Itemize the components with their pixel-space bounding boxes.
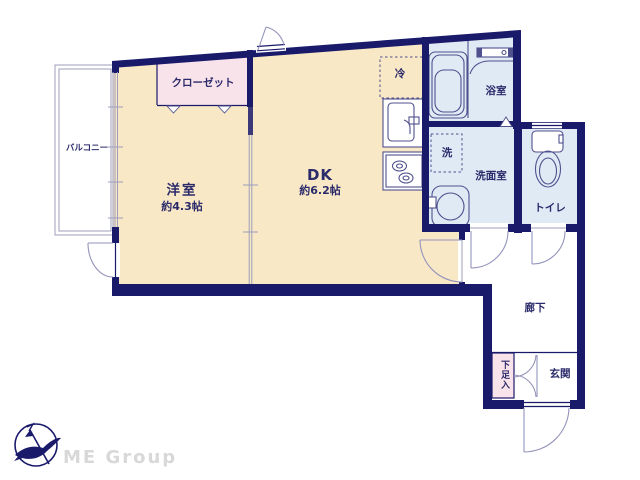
closet-label: クローゼット [172,78,235,90]
toilet-label: トイレ [534,203,566,215]
bedroom-label: 洋室 [167,184,198,199]
bathroom-label: 浴室 [486,86,507,98]
washroom-door [471,231,508,268]
bedroom-area: 約4.3帖 [161,201,203,213]
entrance-label: 玄関 [550,369,571,381]
kitchen-sink [383,99,425,147]
stove [383,152,425,190]
hallway-label: 廊下 [525,303,546,315]
fridge-label: 冷 [395,69,406,81]
floorplan-drawing [0,0,640,480]
balcony-label: バルコニー [66,144,108,153]
brand-logo-mark [14,424,61,466]
shoebox-label: 下足入 [498,360,508,390]
toilet-door [532,231,565,264]
bath-washroom-floor [424,32,521,232]
washroom-label: 洗面室 [475,171,507,183]
shoebox-doors [514,355,537,397]
entry-door [524,408,569,452]
dk-area: 約6.2帖 [299,185,341,197]
laundry-label: 洗 [442,148,453,160]
brand-logo-text: ME Group [63,447,177,468]
floorplan-canvas: バルコニー クローゼット 洋室 約4.3帖 DK 約6.2帖 冷 浴室 洗 洗面… [0,0,640,480]
side-door [88,243,113,277]
dk-label: DK [307,167,333,184]
